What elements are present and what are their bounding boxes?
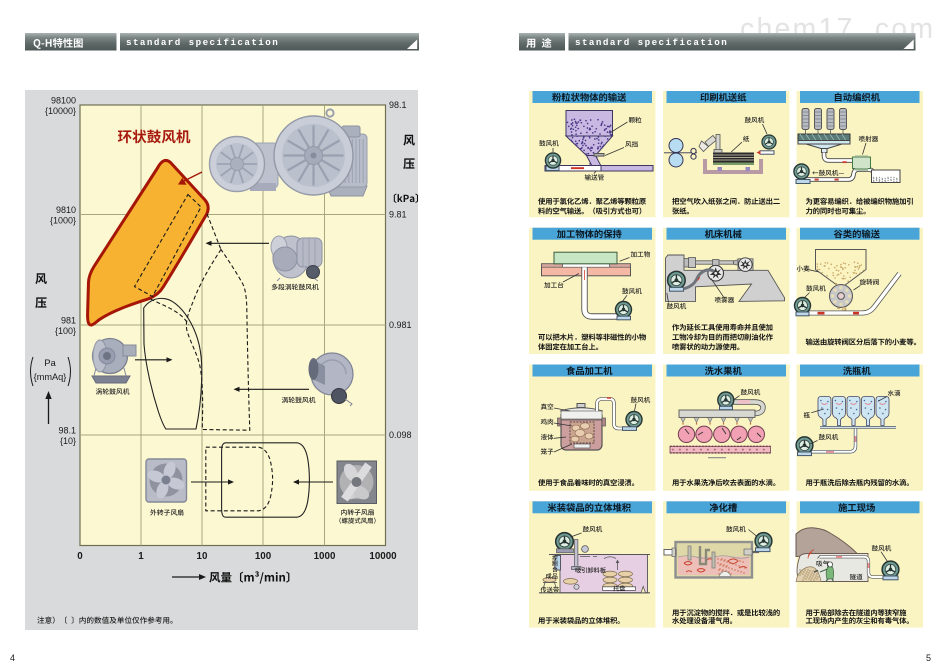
svg-text:9.81: 9.81	[389, 210, 407, 220]
svg-text:0.981: 0.981	[389, 320, 412, 330]
svg-text:1: 1	[138, 551, 144, 562]
svg-text:98100: 98100	[51, 96, 76, 106]
svg-text:1000: 1000	[314, 551, 336, 562]
svg-text:0.098: 0.098	[389, 430, 412, 440]
svg-text:981: 981	[61, 316, 76, 326]
svg-text:{10}: {10}	[60, 436, 76, 446]
svg-text:Pa: Pa	[44, 358, 56, 369]
svg-text:10000: 10000	[369, 551, 397, 562]
svg-text:standard specification: standard specification	[126, 37, 279, 48]
svg-text:0: 0	[77, 551, 83, 562]
svg-text:{1000}: {1000}	[50, 216, 76, 226]
svg-text:4: 4	[10, 653, 15, 663]
svg-text:9810: 9810	[56, 205, 76, 215]
svg-text:98.1: 98.1	[58, 426, 76, 436]
svg-text:5: 5	[926, 653, 931, 663]
svg-text:{mmAq}: {mmAq}	[34, 372, 67, 382]
svg-text:100: 100	[255, 551, 272, 562]
svg-text:standard specification: standard specification	[575, 37, 728, 48]
svg-text:98.1: 98.1	[389, 100, 407, 110]
svg-text:{100}: {100}	[55, 326, 76, 336]
svg-text:{10000}: {10000}	[45, 106, 76, 116]
svg-text:10: 10	[197, 551, 208, 562]
